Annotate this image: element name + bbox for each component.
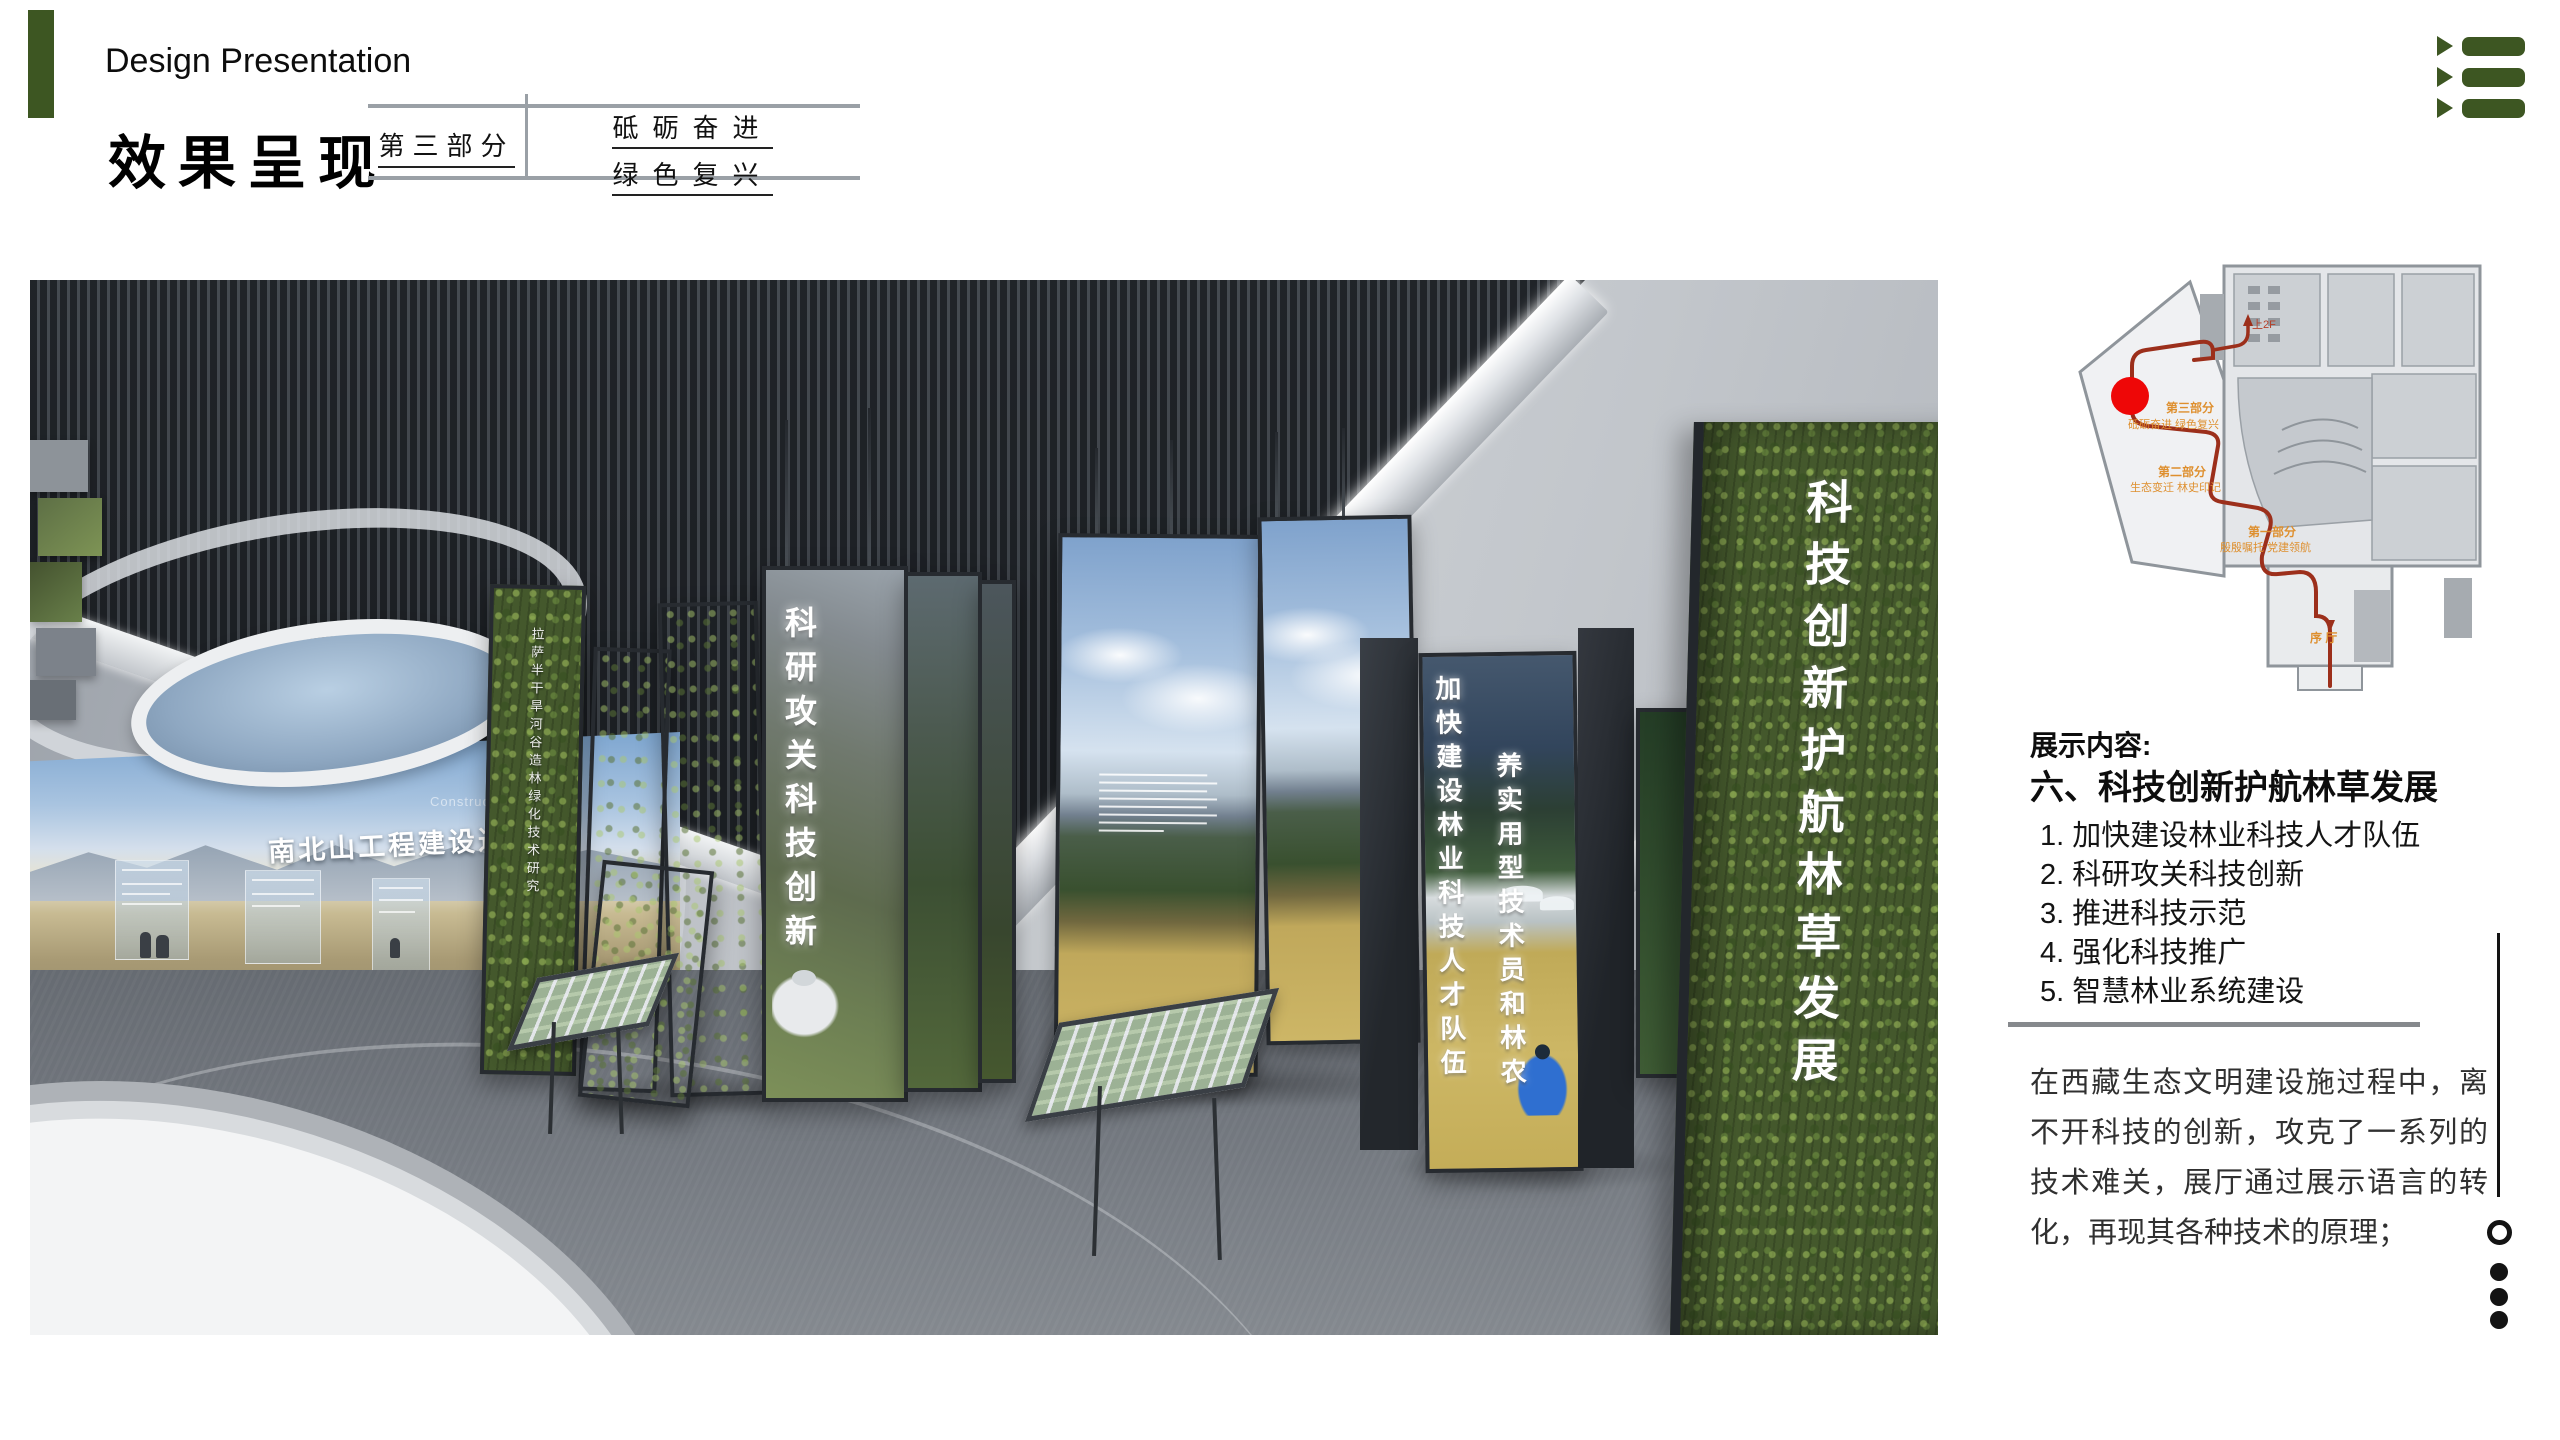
info-card [372,878,430,972]
text-line [379,911,415,913]
info-card [245,870,321,964]
label-part1: 第一部分 [2248,524,2296,539]
list-item: 4. 强化科技推广 [2040,929,2246,971]
floorplan-map: 第三部分 砥砺奋进 绿色复兴 第二部分 生态变迁 林史印记 第一部分 殷殷嘱托 … [2072,260,2496,716]
screen-collage-tile [30,680,76,720]
text-line [122,869,182,871]
label-part2: 第二部分 [2158,464,2206,479]
list-menu-icon[interactable] [2437,36,2533,118]
accent-bar [28,10,54,118]
info-card [115,860,189,960]
slide: Design Presentation 效果呈现 第三部分 砥砺奋进 绿色复兴 … [0,0,2560,1440]
part-theme-line1: 砥砺奋进 [612,108,772,149]
label-part1-sub: 殷殷嘱托 党建领航 [2220,540,2311,554]
tree-panel [904,572,982,1092]
exhibition-render: Construc 南北山工程建设过 [30,280,1938,1335]
panel-paragraph-placeholder [1099,767,1217,838]
page-title-cn: 效果呈现 [108,116,388,200]
list-item: 3. 推进科技示范 [2040,890,2246,932]
hanging-rod [1342,428,1345,520]
dark-pillar [1360,638,1418,1150]
menu-row [2437,67,2533,87]
description-paragraph: 在西藏生态文明建设施过程中，离不开科技的创新，攻克了一系列的技术难关，展厅通过展… [2030,1058,2488,1258]
hanging-rod [1170,440,1173,540]
led-wall-subtitle: Construc [430,794,490,809]
screen-collage-tile [30,440,88,492]
menu-bar-icon [2462,37,2525,56]
pagination-dot[interactable] [2490,1263,2508,1281]
visitor-figure [390,938,400,958]
triangle-bullet-icon [2437,67,2453,87]
tree-planter-figure [772,976,844,1042]
label-up2f: 上2F [2252,318,2276,331]
panel-caption: 拉萨半干旱河谷造林绿化技术研究 [522,627,547,897]
label-part3-sub: 砥砺奋进 绿色复兴 [2128,417,2219,431]
research-panel-text: 科研攻关科技创新 [776,606,822,958]
main-theme-panel: 科技创新护航林草发展 [1670,422,1938,1335]
cultivate-panel-text: 养实用型技术员和林农 [1490,752,1532,1092]
content-heading: 展示内容: [2030,724,2151,764]
pagination-dot[interactable] [2490,1288,2508,1306]
label-part3: 第三部分 [2166,400,2214,415]
screen-collage-tile [36,628,96,676]
section-divider [2008,1022,2420,1027]
greenhouse [1540,896,1574,910]
list-item: 5. 智慧林业系统建设 [2040,968,2304,1010]
menu-row [2437,98,2533,118]
part-theme-line2: 绿色复兴 [612,155,772,196]
triangle-bullet-icon [2437,36,2453,56]
current-location-dot [2111,377,2149,415]
part-label: 第三部分 [378,131,514,168]
screen-collage-tile [30,562,82,622]
text-line [379,887,423,889]
triangle-bullet-icon [2437,98,2453,118]
text-line [252,893,314,895]
hanging-rod [1275,432,1278,520]
pagination-dot[interactable] [2490,1311,2508,1329]
talent-panel-text: 加快建设林业科技人才队伍 [1429,674,1472,1082]
text-line [122,903,182,905]
research-panel: 科研攻关科技创新 [762,566,908,1102]
dark-pillar [1578,628,1634,1168]
hanging-rod [1095,448,1098,538]
menu-bar-icon [2462,99,2525,118]
part-theme-cell: 砥砺奋进 绿色复兴 [525,108,860,196]
list-item: 1. 加快建设林业科技人才队伍 [2040,812,2420,854]
hanging-rod [785,420,788,570]
planter-hat [792,970,816,986]
menu-bar-icon [2462,68,2525,87]
label-lobby: 序 厅 [2310,630,2337,645]
page-title-en: Design Presentation [105,42,411,81]
harvester-head [1535,1044,1550,1059]
part-table: 第三部分 砥砺奋进 绿色复兴 [368,100,860,180]
text-line [122,883,182,885]
label-part2-sub: 生态变迁 林史印记 [2130,480,2221,494]
text-line [379,899,423,901]
text-line [252,905,300,907]
list-item: 2. 科研攻关科技创新 [2040,851,2304,893]
section-title: 六、科技创新护航林草发展 [2030,760,2438,809]
screen-collage-tile [38,498,102,556]
tree-panel [978,580,1016,1083]
main-theme-text: 科技创新护航林草发展 [1778,478,1860,1098]
text-line [122,893,170,895]
pagination-current-dot[interactable] [2487,1220,2512,1245]
text-line [252,879,314,881]
menu-row [2437,36,2533,56]
visitor-figure [156,935,169,958]
pagination-line [2497,933,2500,1197]
hanging-rod [868,408,871,570]
talent-panel: 加快建设林业科技人才队伍 养实用型技术员和林农 [1418,651,1583,1173]
visitor-figure [140,932,151,958]
part-label-cell: 第三部分 [368,126,525,163]
